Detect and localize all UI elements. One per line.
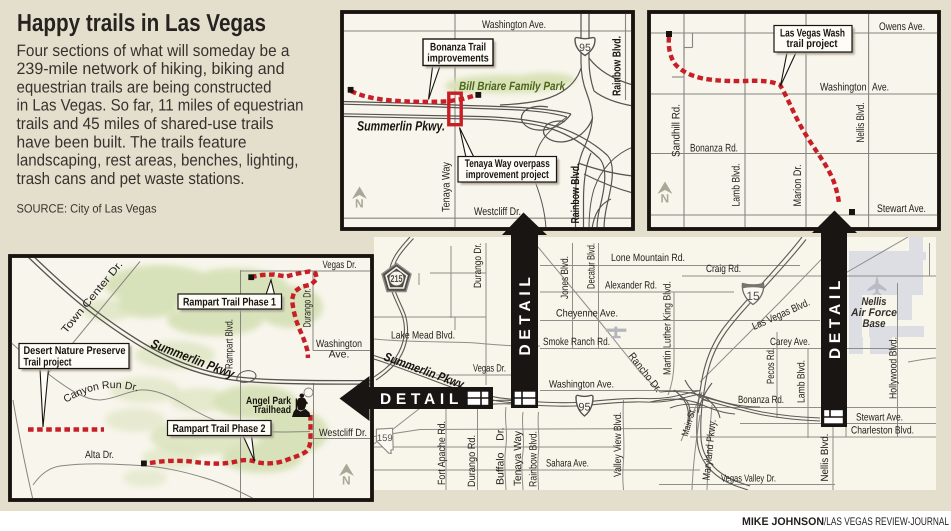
svg-text:Decatur Blvd.: Decatur Blvd. [586,243,598,289]
svg-text:have been built. The trails fe: have been built. The trails feature [17,133,247,151]
svg-text:Ave.: Ave. [329,349,350,361]
svg-text:landscaping, rest areas, bench: landscaping, rest areas, benches, lighti… [17,152,299,170]
svg-text:Trail project: Trail project [24,357,72,369]
svg-text:15: 15 [746,289,760,303]
svg-text:Washington Ave.: Washington Ave. [549,379,614,391]
svg-text:Marion Dr.: Marion Dr. [792,165,804,207]
svg-text:in Las Vegas. So far, 11 miles: in Las Vegas. So far, 11 miles of equest… [17,97,304,115]
svg-text:Tenaya Way: Tenaya Way [441,162,453,212]
svg-text:improvements: improvements [427,52,489,64]
svg-text:Summerlin Pkwy.: Summerlin Pkwy. [357,119,445,134]
svg-text:Ave.: Ave. [872,82,889,94]
svg-text:N: N [661,192,670,206]
svg-text:159: 159 [377,433,393,444]
svg-text:239-mile network of hiking, bi: 239-mile network of hiking, biking and [17,60,285,78]
svg-text:Sandhill Rd.: Sandhill Rd. [671,104,683,157]
svg-text:Durango Dr.: Durango Dr. [472,243,484,288]
svg-text:Sahara Ave.: Sahara Ave. [546,458,589,470]
svg-text:DETAIL: DETAIL [517,272,534,355]
svg-text:Craig Rd.: Craig Rd. [706,263,741,275]
svg-text:Vegas Valley Dr.: Vegas Valley Dr. [721,474,776,485]
svg-text:Valley View Blvd.: Valley View Blvd. [612,412,624,477]
svg-text:Happy trails in Las Vegas: Happy trails in Las Vegas [17,10,266,37]
svg-text:Charleston Blvd.: Charleston Blvd. [851,425,914,437]
svg-text:Hollywood Blvd.: Hollywood Blvd. [888,337,900,399]
svg-text:215: 215 [391,274,403,285]
svg-text:Washington: Washington [820,82,867,94]
svg-text:Rampart Trail Phase 1: Rampart Trail Phase 1 [183,297,276,309]
svg-text:Nellis Blvd.: Nellis Blvd. [819,434,831,482]
svg-text:Base: Base [863,318,886,330]
svg-text:Owens Ave.: Owens Ave. [879,21,925,33]
svg-text:Lamb Blvd.: Lamb Blvd. [796,360,808,403]
svg-text:Buffalo Dr.: Buffalo Dr. [495,427,507,485]
svg-text:95: 95 [579,42,591,54]
svg-text:Alexander Rd.: Alexander Rd. [605,280,657,292]
svg-text:Trailhead: Trailhead [253,404,291,416]
svg-text:Smoke Ranch Rd.: Smoke Ranch Rd. [543,336,610,348]
svg-text:Westcliff Dr.: Westcliff Dr. [319,427,367,439]
svg-text:Rainbow Blvd.: Rainbow Blvd. [612,36,624,96]
svg-text:Martin Luther King Blvd.: Martin Luther King Blvd. [662,281,674,375]
svg-text:Durango Rd.: Durango Rd. [466,435,478,487]
svg-text:SOURCE: City of Las Vegas: SOURCE: City of Las Vegas [17,201,157,215]
svg-text:Jones Blvd.: Jones Blvd. [559,256,571,299]
svg-text:Rainbow Blvd.: Rainbow Blvd. [528,431,540,487]
svg-text:DETAIL: DETAIL [827,276,844,359]
svg-text:Lamb Blvd.: Lamb Blvd. [731,164,743,207]
svg-text:Stewart Ave.: Stewart Ave. [877,203,926,215]
svg-text:Bonanza Rd.: Bonanza Rd. [690,143,738,155]
svg-text:Washington Ave.: Washington Ave. [482,19,546,31]
svg-text:Cheyenne Ave.: Cheyenne Ave. [556,308,618,320]
svg-text:Rainbow Blvd.: Rainbow Blvd. [570,164,582,224]
svg-text:equestrian trails are being co: equestrian trails are being constructed [17,78,272,96]
svg-text:DETAIL: DETAIL [380,391,463,408]
svg-text:Vegas Dr.: Vegas Dr. [473,363,506,375]
svg-text:Nellis Blvd.: Nellis Blvd. [855,103,867,143]
svg-text:Carey Ave.: Carey Ave. [770,336,810,348]
svg-text:MIKE JOHNSON/LAS VEGAS REVIEW-: MIKE JOHNSON/LAS VEGAS REVIEW-JOURNAL [742,516,949,528]
svg-text:Desert Nature Preserve: Desert Nature Preserve [24,345,126,357]
svg-text:N: N [355,197,364,211]
svg-text:Rampart Trail Phase 2: Rampart Trail Phase 2 [173,423,266,435]
svg-text:Lone Mountain Rd.: Lone Mountain Rd. [611,252,685,264]
svg-text:trail project: trail project [787,38,838,50]
svg-text:Westcliff Dr.: Westcliff Dr. [474,206,521,218]
svg-text:improvement project: improvement project [466,169,549,181]
svg-text:Fort Apache Rd.: Fort Apache Rd. [436,421,448,485]
svg-text:95: 95 [578,402,590,414]
svg-text:Durango Dr.: Durango Dr. [302,289,314,328]
svg-text:Tenaya Way: Tenaya Way [512,430,524,486]
svg-text:Vegas Dr.: Vegas Dr. [323,259,357,271]
svg-text:Stewart Ave.: Stewart Ave. [856,412,903,424]
svg-text:trails and 45 miles of shared-: trails and 45 miles of shared-use trails [17,115,274,133]
svg-text:Pecos Rd.: Pecos Rd. [765,348,777,384]
svg-text:N: N [342,474,351,488]
svg-text:trash cans and pet waste stati: trash cans and pet waste stations. [17,170,245,188]
svg-text:Lake Mead Blvd.: Lake Mead Blvd. [391,330,455,342]
svg-text:Four sections of what will som: Four sections of what will someday be a [17,42,291,60]
svg-text:Alta Dr.: Alta Dr. [85,449,114,461]
svg-text:Bonanza Rd.: Bonanza Rd. [738,394,784,406]
svg-text:Bill Briare Family Park: Bill Briare Family Park [459,79,566,93]
svg-text:Rampart Blvd.: Rampart Blvd. [224,319,236,369]
